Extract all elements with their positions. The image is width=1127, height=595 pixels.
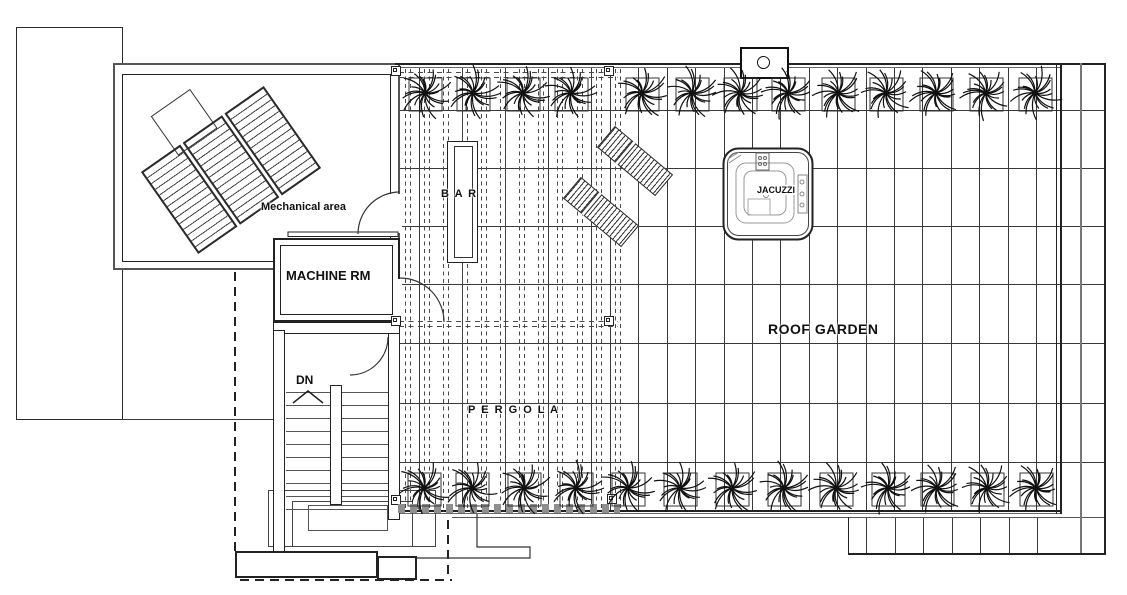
eave-strip-vline xyxy=(1009,517,1010,553)
bar-label: B A R xyxy=(441,188,478,200)
pergola-rafter-dashed-line xyxy=(577,69,578,509)
pergola-rafter-dashed-line xyxy=(543,69,544,509)
eave-strip-vline xyxy=(923,517,924,553)
deck-grid-vline xyxy=(951,68,952,510)
mechanical-area-label: Mechanical area xyxy=(261,201,346,213)
pergola-label: P E R G O L A xyxy=(468,404,559,416)
deck-grid-vline xyxy=(780,68,781,510)
mech-zone-dashed-bottom xyxy=(240,579,452,581)
pergola-rafter-dashed-line xyxy=(443,69,444,509)
pergola-post xyxy=(391,316,401,326)
pergola-rafter-dashed-line xyxy=(424,69,425,509)
pergola-rafter-dashed-line xyxy=(524,69,525,509)
deck-grid-vline xyxy=(922,68,923,510)
stair-door-opening xyxy=(349,323,387,333)
plant-icon xyxy=(1001,452,1071,522)
stair-left-wall xyxy=(273,330,285,552)
stair-down-label: DN xyxy=(296,373,313,387)
parapet-bar-step xyxy=(377,556,417,580)
lower-roof-outline xyxy=(16,27,123,420)
pergola-rafter-dashed-line xyxy=(467,69,468,509)
stair-stringer xyxy=(330,385,342,505)
pergola-rafter-dashed-line xyxy=(410,69,411,509)
right-border-mid xyxy=(1080,63,1082,553)
pergola-rafter-dashed-line xyxy=(486,69,487,509)
pergola-rafter-dashed-line xyxy=(500,69,501,509)
deck-grid-vline xyxy=(1036,68,1037,510)
pergola-rafter-dashed-line xyxy=(596,69,597,509)
pergola-beam-dashed-line xyxy=(399,326,618,327)
jacuzzi-label: JACUZZI xyxy=(756,185,796,195)
parapet-bar-left xyxy=(235,551,378,578)
deck-grid-vline xyxy=(638,68,639,510)
pergola-beam-dashed-line xyxy=(399,321,618,322)
deck-grid-vline xyxy=(837,68,838,510)
right-border-outer xyxy=(1104,63,1106,554)
right-border-inner-b xyxy=(1060,63,1062,514)
bottom-right-step-edge xyxy=(848,517,849,554)
deck-grid-vline xyxy=(548,68,549,510)
deck-grid-vline xyxy=(1008,68,1009,510)
pergola-rafter-dashed-line xyxy=(519,69,520,509)
pergola-rafter-dashed-line xyxy=(582,69,583,509)
pergola-rafter-dashed-line xyxy=(448,69,449,509)
eave-strip-vline xyxy=(895,517,896,553)
plant-icon xyxy=(536,57,606,127)
bottom-right-outer-edge xyxy=(848,553,1106,555)
deck-grid-vline xyxy=(866,68,867,510)
deck-grid-vline xyxy=(809,68,810,510)
deck-grid-vline xyxy=(695,68,696,510)
door-swing-arc xyxy=(350,337,388,375)
lounge-chair xyxy=(597,126,673,196)
deck-grid-vline xyxy=(894,68,895,510)
pergola-post xyxy=(604,316,614,326)
pergola-rafter-dashed-line xyxy=(405,69,406,509)
eave-strip-vline xyxy=(866,517,867,553)
bar-counter-inner xyxy=(454,146,473,258)
pergola-rafter-dashed-line xyxy=(601,69,602,509)
lower-roof-bottom-line xyxy=(122,419,274,420)
eave-strip-vline xyxy=(952,517,953,553)
eave-strip-vline xyxy=(1037,517,1038,553)
plant-icon xyxy=(1000,57,1070,127)
pergola-rafter-dashed-line xyxy=(429,69,430,509)
mech-door-opening xyxy=(390,194,402,233)
roof-garden-label: ROOF GARDEN xyxy=(768,321,879,337)
right-border-inner-a xyxy=(1056,63,1057,514)
roof-plan-drawing: Mechanical area MACHINE RM DN B A R P E … xyxy=(0,0,1127,595)
pergola-rafter-dashed-line xyxy=(538,69,539,509)
deck-grid-vline xyxy=(591,68,592,510)
machine-room-door-opening xyxy=(393,279,402,317)
deck-grid-vline xyxy=(724,68,725,510)
pergola-rafter-dashed-line xyxy=(505,69,506,509)
deck-grid-vline xyxy=(752,68,753,510)
deck-grid-vline xyxy=(979,68,980,510)
machine-room-label: MACHINE RM xyxy=(286,268,371,283)
deck-grid-vline xyxy=(419,68,420,510)
pergola-rafter-dashed-line xyxy=(557,69,558,509)
pergola-rafter-dashed-line xyxy=(462,69,463,509)
pergola-rafter-dashed-line xyxy=(562,69,563,509)
stair-landing-outline xyxy=(308,505,388,531)
deck-grid-vline xyxy=(667,68,668,510)
eave-strip-vline xyxy=(980,517,981,553)
pergola-rafter-dashed-line xyxy=(481,69,482,509)
